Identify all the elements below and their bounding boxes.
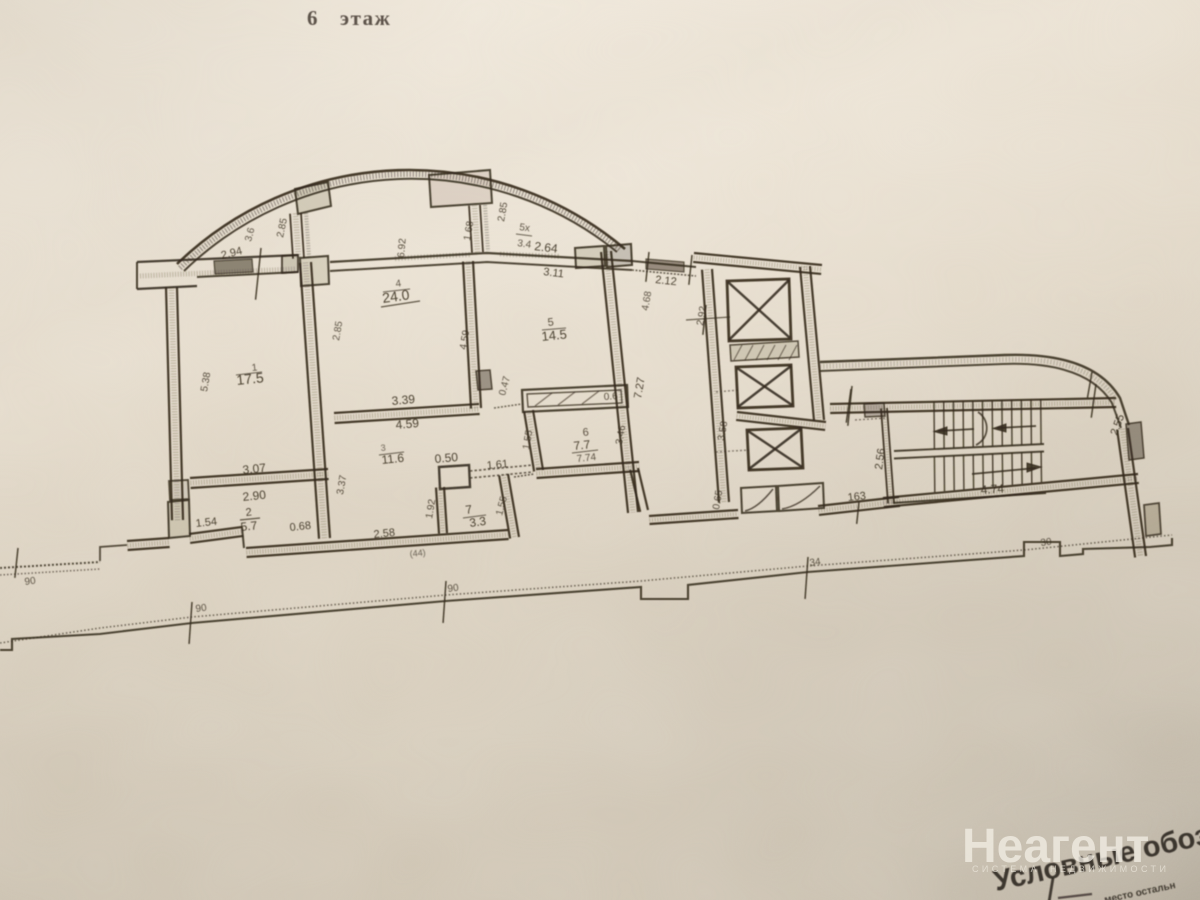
svg-text:6: 6 — [307, 6, 318, 30]
svg-text:2.90: 2.90 — [242, 488, 267, 504]
svg-text:1.61: 1.61 — [486, 458, 508, 472]
svg-text:0.6: 0.6 — [603, 391, 618, 403]
svg-text:0.50: 0.50 — [434, 450, 459, 466]
svg-text:НЕДВИЖИМОСТИ: НЕДВИЖИМОСТИ — [1050, 864, 1169, 874]
svg-text:3.4: 3.4 — [517, 238, 533, 251]
svg-text:34: 34 — [809, 556, 822, 569]
svg-text:30: 30 — [1040, 536, 1053, 549]
svg-text:2: 2 — [245, 506, 252, 519]
svg-text:этаж: этаж — [340, 6, 391, 30]
svg-text:3.39: 3.39 — [391, 392, 416, 408]
svg-text:3: 3 — [380, 443, 386, 453]
svg-text:СИСТЕМА: СИСТЕМА — [972, 864, 1040, 874]
svg-text:5.7: 5.7 — [240, 518, 258, 534]
svg-text:6.92: 6.92 — [396, 237, 409, 258]
svg-text:2.58: 2.58 — [373, 527, 396, 541]
svg-text:14.5: 14.5 — [541, 326, 568, 344]
svg-text:5x: 5x — [519, 222, 531, 234]
svg-text:2.12: 2.12 — [655, 274, 678, 288]
svg-text:90: 90 — [195, 602, 208, 615]
svg-text:163: 163 — [847, 490, 867, 504]
svg-text:3.11: 3.11 — [543, 266, 565, 280]
svg-text:1.54: 1.54 — [195, 516, 218, 530]
svg-text:3.07: 3.07 — [242, 461, 267, 477]
svg-text:4.59: 4.59 — [395, 416, 420, 432]
svg-text:(44): (44) — [409, 547, 426, 559]
svg-text:0.68: 0.68 — [289, 520, 312, 534]
svg-text:90: 90 — [447, 582, 460, 595]
svg-text:2.64: 2.64 — [534, 239, 559, 256]
svg-text:90: 90 — [24, 575, 37, 588]
svg-text:7.74: 7.74 — [576, 452, 597, 465]
